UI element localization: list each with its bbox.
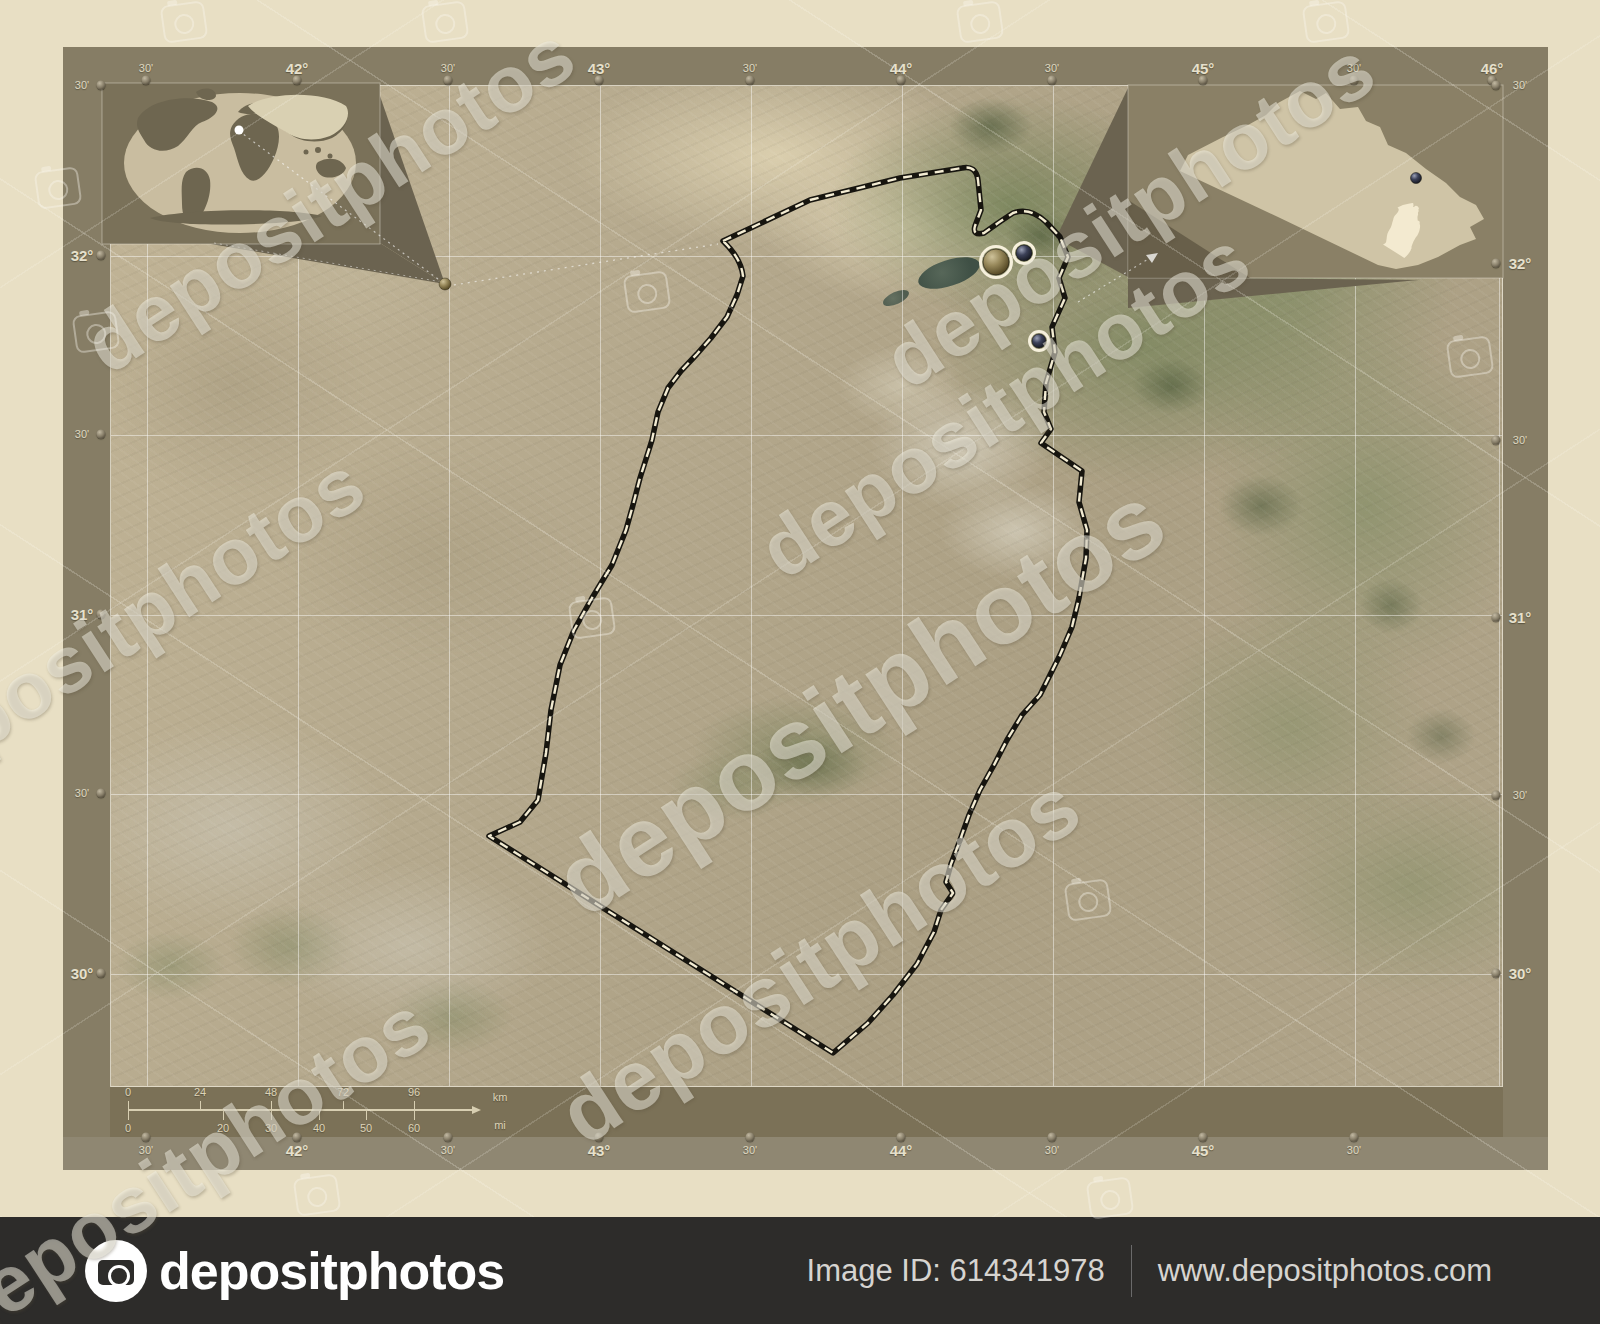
coord-label-bottom: 43° <box>588 1142 611 1159</box>
coord-label-top: 45° <box>1192 60 1215 77</box>
graticule-meridian <box>298 86 299 1086</box>
coord-label-right: 32° <box>1509 255 1532 272</box>
edge-marker-sphere <box>1048 1133 1057 1142</box>
edge-marker-sphere <box>1492 259 1501 268</box>
coord-label-right: 30° <box>1509 965 1532 982</box>
scalebar-km-tick <box>200 1101 201 1110</box>
graticule-meridian <box>1499 86 1500 1086</box>
scalebar-mi-unit: mi <box>494 1119 506 1131</box>
edge-marker-sphere <box>1492 436 1501 445</box>
graticule-parallel <box>111 615 1502 616</box>
stock-footer-bar: depositphotos Image ID: 614341978 www.de… <box>0 1217 1600 1324</box>
coord-label-top: 44° <box>890 60 913 77</box>
coord-label-right: 30' <box>1513 434 1527 446</box>
edge-marker-sphere <box>1350 1133 1359 1142</box>
edge-marker-sphere <box>1492 791 1501 800</box>
coord-label-bottom: 30' <box>743 1144 757 1156</box>
lake-small <box>881 287 911 310</box>
coord-label-bottom: 30' <box>1347 1144 1361 1156</box>
edge-marker-sphere <box>1199 1133 1208 1142</box>
website-url: www.depositphotos.com <box>1158 1253 1492 1289</box>
edge-marker-sphere <box>746 1133 755 1142</box>
coord-label-bottom: 42° <box>286 1142 309 1159</box>
graticule-meridian <box>147 86 148 1086</box>
scalebar-axis <box>128 1109 472 1111</box>
coord-label-top: 30' <box>743 62 757 74</box>
logo-text: depositphotos <box>159 1241 504 1301</box>
edge-marker-sphere <box>97 610 106 619</box>
scalebar-km-unit: km <box>493 1091 508 1103</box>
scalebar-km-tick <box>128 1101 129 1110</box>
edge-marker-sphere <box>444 1133 453 1142</box>
camera-watermark-icon <box>293 1173 342 1217</box>
scalebar-km-value: 72 <box>337 1086 349 1098</box>
edge-marker-sphere <box>595 76 604 85</box>
edge-marker-sphere <box>142 76 151 85</box>
coord-label-left: 31° <box>71 606 94 623</box>
scalebar-mi-value: 30 <box>265 1122 277 1134</box>
graticule-meridian <box>1053 86 1054 1086</box>
edge-marker-sphere <box>595 1133 604 1142</box>
coord-label-bottom: 30' <box>441 1144 455 1156</box>
coord-label-top: 43° <box>588 60 611 77</box>
lake-razzaza <box>915 251 984 296</box>
coord-label-top: 30' <box>139 62 153 74</box>
graticule-meridian <box>902 86 903 1086</box>
graticule-meridian <box>751 86 752 1086</box>
footer-meta: Image ID: 614341978 www.depositphotos.co… <box>807 1217 1492 1324</box>
edge-marker-sphere <box>1492 81 1501 90</box>
graticule-meridian <box>600 86 601 1086</box>
camera-watermark-icon <box>421 0 470 44</box>
edge-marker-sphere <box>444 76 453 85</box>
coord-label-top: 46° <box>1481 60 1504 77</box>
edge-marker-sphere <box>897 1133 906 1142</box>
edge-marker-sphere <box>97 430 106 439</box>
graticule-meridian <box>449 86 450 1086</box>
scalebar-mi-value: 40 <box>313 1122 325 1134</box>
edge-marker-sphere <box>293 1133 302 1142</box>
stock-map-image: 30'42°30'43°30'44°30'45°30'46°30'42°30'4… <box>0 0 1600 1324</box>
coord-label-left: 30' <box>75 787 89 799</box>
coord-label-right: 30' <box>1513 789 1527 801</box>
satellite-map <box>110 85 1503 1087</box>
image-id: Image ID: 614341978 <box>807 1253 1105 1289</box>
scalebar-km-value: 96 <box>408 1086 420 1098</box>
camera-watermark-icon <box>956 0 1005 44</box>
coord-label-top: 30' <box>441 62 455 74</box>
photo-area: 30'42°30'43°30'44°30'45°30'46°30'42°30'4… <box>0 0 1600 1217</box>
edge-marker-sphere <box>293 76 302 85</box>
coord-label-left: 30° <box>71 965 94 982</box>
edge-marker-sphere <box>1492 969 1501 978</box>
edge-marker-sphere <box>142 1133 151 1142</box>
coord-label-bottom: 30' <box>139 1144 153 1156</box>
scalebar-mi-value: 20 <box>217 1122 229 1134</box>
scalebar-mi-tick <box>319 1111 320 1120</box>
edge-marker-sphere <box>1350 76 1359 85</box>
terrain-texture <box>111 86 1502 1086</box>
camera-logo-icon <box>85 1240 147 1302</box>
coord-label-bottom: 44° <box>890 1142 913 1159</box>
coord-label-left: 32° <box>71 247 94 264</box>
depositphotos-logo: depositphotos <box>85 1239 504 1303</box>
camera-watermark-icon <box>160 0 209 44</box>
scalebar-km-value: 24 <box>194 1086 206 1098</box>
scalebar-mi-value: 60 <box>408 1122 420 1134</box>
scalebar-mi-tick <box>271 1111 272 1120</box>
edge-marker-sphere <box>97 969 106 978</box>
coord-label-left: 30' <box>75 428 89 440</box>
edge-marker-sphere <box>1199 76 1208 85</box>
scalebar-km-tick <box>343 1101 344 1110</box>
footer-divider <box>1131 1245 1132 1297</box>
graticule-parallel <box>111 794 1502 795</box>
scalebar-km-value: 48 <box>265 1086 277 1098</box>
coord-label-top: 42° <box>286 60 309 77</box>
scalebar-km-tick <box>414 1101 415 1110</box>
edge-marker-sphere <box>746 76 755 85</box>
scalebar-mi-value: 0 <box>125 1122 131 1134</box>
edge-marker-sphere <box>97 789 106 798</box>
scalebar-mi-tick <box>414 1111 415 1120</box>
graticule-meridian <box>1204 86 1205 1086</box>
coord-label-top: 30' <box>1045 62 1059 74</box>
scalebar-mi-value: 50 <box>360 1122 372 1134</box>
edge-marker-sphere <box>97 251 106 260</box>
scalebar-arrowhead <box>472 1106 481 1114</box>
edge-marker-sphere <box>97 81 106 90</box>
graticule-parallel <box>111 974 1502 975</box>
graticule-meridian <box>1355 86 1356 1086</box>
coord-label-left: 30' <box>75 79 89 91</box>
coord-label-right: 30' <box>1513 79 1527 91</box>
coord-label-right: 31° <box>1509 609 1532 626</box>
camera-watermark-icon <box>1086 1176 1135 1220</box>
scalebar-mi-tick <box>366 1111 367 1120</box>
scalebar-mi-tick <box>223 1111 224 1120</box>
scalebar-km-tick <box>271 1101 272 1110</box>
scalebar-km-value: 0 <box>125 1086 131 1098</box>
graticule-parallel <box>111 435 1502 436</box>
coord-label-bottom: 45° <box>1192 1142 1215 1159</box>
graticule-parallel <box>111 256 1502 257</box>
edge-marker-sphere <box>897 76 906 85</box>
camera-watermark-icon <box>1302 0 1351 44</box>
scalebar-mi-tick <box>128 1111 129 1120</box>
edge-marker-sphere <box>1492 613 1501 622</box>
coord-label-bottom: 30' <box>1045 1144 1059 1156</box>
edge-marker-sphere <box>1048 76 1057 85</box>
coord-label-top: 30' <box>1347 62 1361 74</box>
